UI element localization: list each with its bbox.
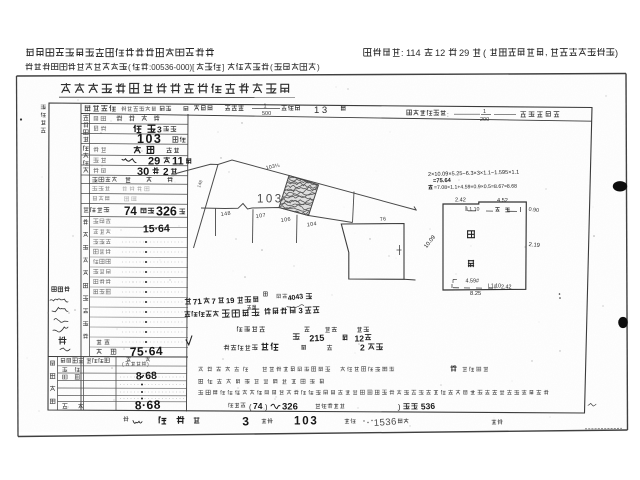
svg-text:1: 1 — [264, 104, 267, 110]
svg-text:4.59#: 4.59# — [466, 279, 480, 285]
svg-text:(: ( — [270, 63, 273, 72]
svg-text:29: 29 — [148, 156, 160, 168]
svg-text:19: 19 — [226, 296, 235, 306]
svg-text:(: ( — [483, 48, 486, 58]
svg-text:114: 114 — [406, 48, 421, 58]
svg-text::: : — [447, 112, 449, 119]
svg-text:74: 74 — [253, 401, 263, 411]
svg-text:): ) — [147, 362, 149, 368]
svg-text:103: 103 — [257, 194, 284, 206]
svg-text:L1.10: L1.10 — [488, 283, 501, 289]
svg-text:(: ( — [128, 63, 131, 72]
svg-text:2: 2 — [163, 167, 169, 178]
svg-text:1536: 1536 — [373, 416, 397, 429]
svg-text:): ) — [317, 63, 320, 72]
svg-text:103: 103 — [294, 416, 319, 428]
svg-text:12: 12 — [435, 48, 445, 58]
svg-text:8·68: 8·68 — [135, 398, 162, 413]
svg-text:74: 74 — [124, 206, 137, 218]
svg-text:L1.10: L1.10 — [466, 207, 479, 213]
svg-text:29: 29 — [459, 48, 469, 58]
svg-text:): ) — [615, 48, 618, 58]
svg-text:2: 2 — [360, 343, 365, 353]
svg-text:7: 7 — [211, 297, 215, 306]
svg-text:1 3: 1 3 — [314, 105, 327, 116]
svg-text:4.52: 4.52 — [497, 198, 508, 204]
svg-text:103: 103 — [137, 132, 162, 146]
svg-text:,: , — [545, 47, 548, 57]
svg-text:326: 326 — [156, 205, 177, 219]
svg-text:30: 30 — [137, 166, 149, 178]
svg-text:76: 76 — [380, 216, 387, 223]
svg-text:(: ( — [122, 362, 124, 368]
svg-text::: : — [401, 48, 404, 58]
svg-text:]: ] — [222, 63, 224, 72]
svg-text:=75.64: =75.64 — [433, 178, 452, 185]
svg-text:215: 215 — [309, 333, 325, 344]
svg-text:8·68: 8·68 — [136, 370, 158, 383]
svg-text:15·64: 15·64 — [143, 223, 170, 236]
svg-text:326: 326 — [282, 402, 298, 413]
svg-text:536: 536 — [421, 401, 436, 412]
svg-text:8.25: 8.25 — [470, 291, 481, 297]
svg-text:2.42: 2.42 — [501, 284, 512, 290]
svg-text::00536-000)[: :00536-000)[ — [149, 63, 195, 72]
svg-text:11: 11 — [172, 156, 184, 168]
svg-text:200: 200 — [480, 117, 489, 123]
svg-text:2.42: 2.42 — [455, 197, 466, 203]
svg-text:2.19: 2.19 — [528, 242, 540, 249]
svg-text:3: 3 — [242, 414, 250, 428]
svg-text:500: 500 — [262, 111, 271, 117]
svg-text:71: 71 — [192, 297, 202, 307]
